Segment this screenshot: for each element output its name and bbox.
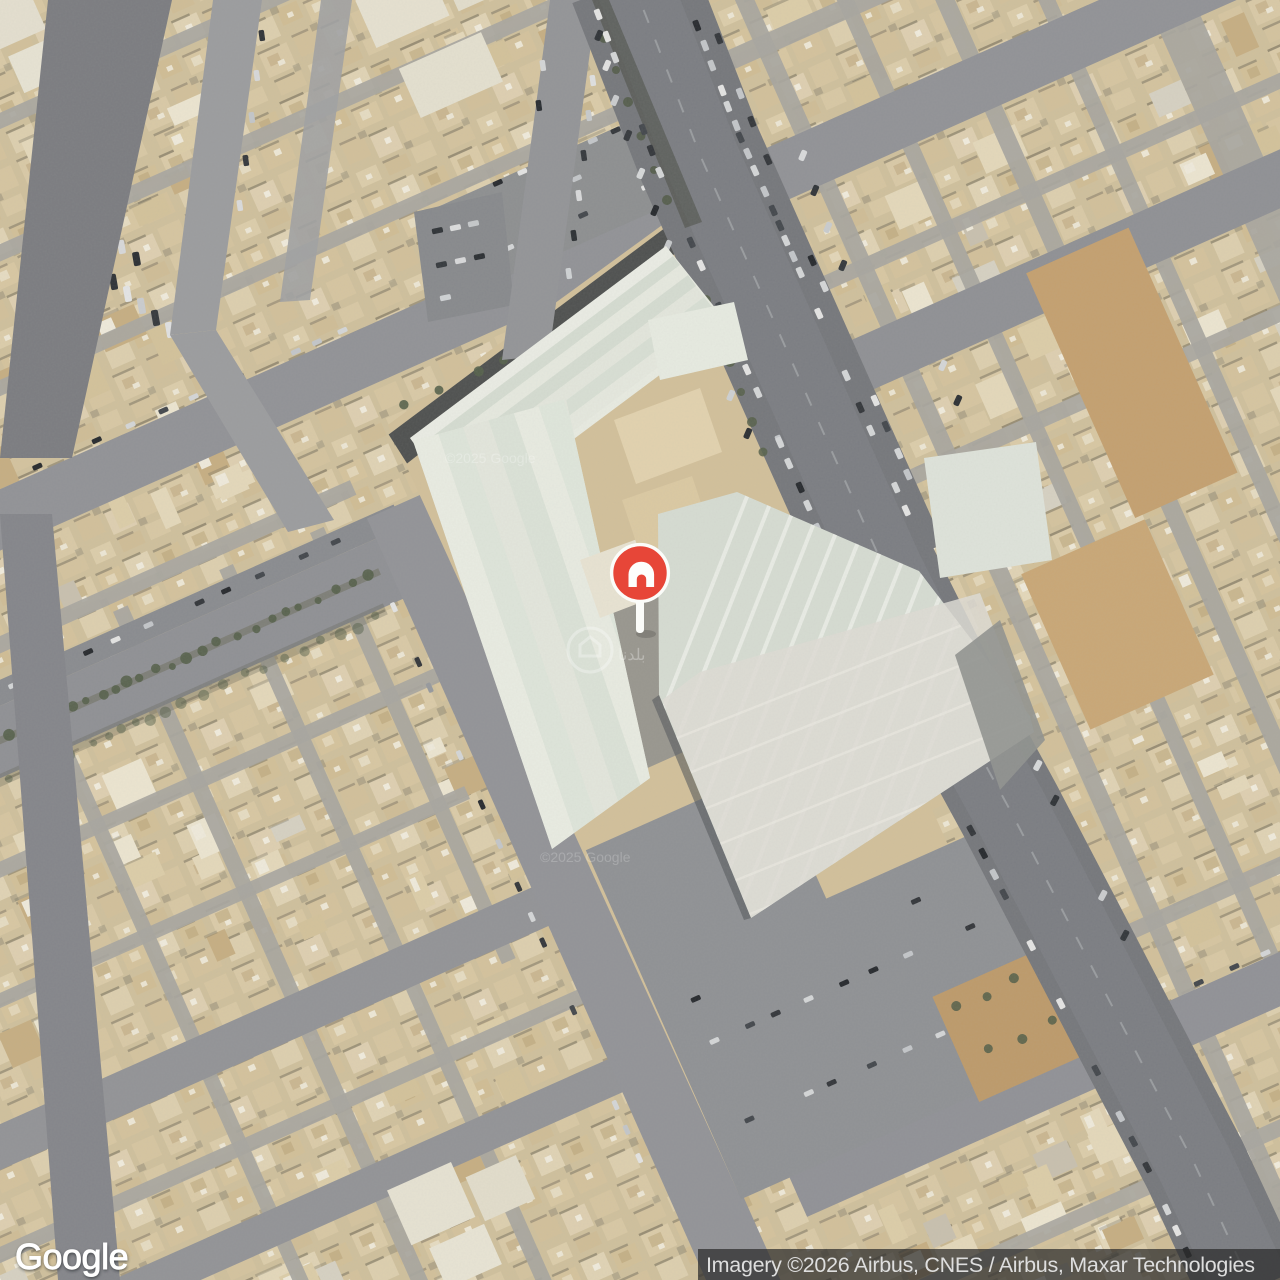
svg-text:بلدنا: بلدنا bbox=[618, 647, 645, 664]
svg-text:©2025 Google: ©2025 Google bbox=[540, 849, 631, 865]
svg-text:Google: Google bbox=[15, 1236, 128, 1277]
svg-text:Imagery ©2026 Airbus, CNES / A: Imagery ©2026 Airbus, CNES / Airbus, Max… bbox=[706, 1253, 1255, 1277]
svg-text:©2025 Google: ©2025 Google bbox=[445, 450, 536, 466]
